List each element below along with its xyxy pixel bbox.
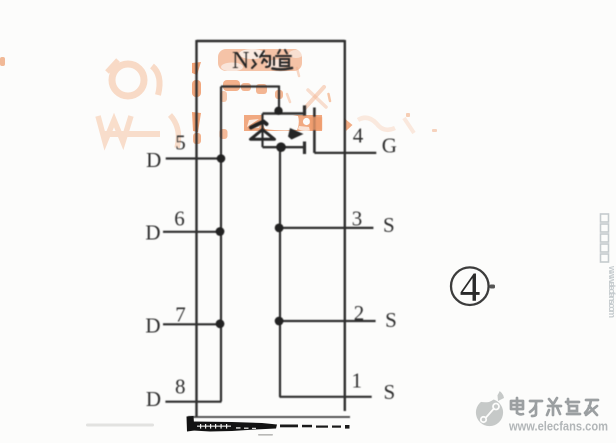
svg-text:8: 8 — [175, 375, 186, 399]
svg-text:5: 5 — [175, 131, 186, 155]
svg-text:4: 4 — [460, 264, 481, 310]
svg-text:G: G — [382, 133, 397, 157]
svg-text:N: N — [232, 48, 249, 74]
svg-text:3: 3 — [352, 207, 363, 231]
svg-text:4: 4 — [353, 124, 364, 148]
svg-text:2: 2 — [354, 301, 365, 325]
svg-text:www.elecfans.com: www.elecfans.com — [508, 419, 608, 434]
svg-text:D: D — [146, 387, 161, 411]
svg-text:S: S — [385, 308, 397, 332]
svg-text:S: S — [383, 213, 395, 237]
svg-text:D: D — [146, 148, 161, 172]
svg-text:7: 7 — [175, 303, 186, 327]
svg-text:6: 6 — [174, 207, 185, 231]
svg-text:www.elecfans.com: www.elecfans.com — [607, 265, 616, 318]
svg-text:1: 1 — [352, 369, 363, 393]
svg-text:S: S — [383, 380, 395, 404]
svg-text:D: D — [145, 221, 160, 245]
svg-text:D: D — [145, 314, 160, 338]
